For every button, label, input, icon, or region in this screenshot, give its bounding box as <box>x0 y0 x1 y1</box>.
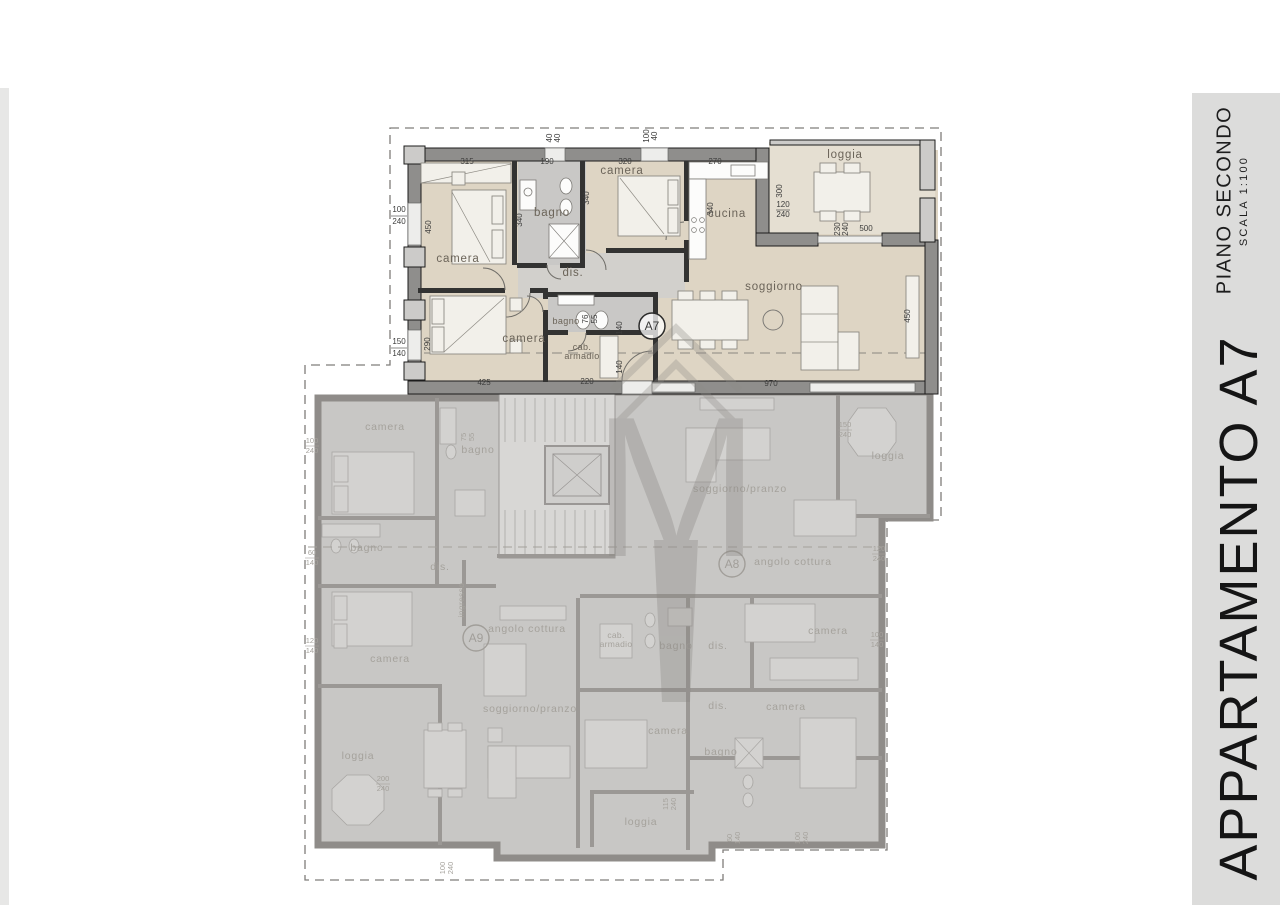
dim: 40 <box>553 133 562 142</box>
dim: 300 <box>775 184 784 198</box>
dim: 315 <box>460 157 474 166</box>
dim: 120 <box>776 200 790 209</box>
pillar <box>920 198 935 242</box>
pillar <box>404 362 425 380</box>
dim: 240 <box>873 554 886 563</box>
pillow <box>432 327 444 352</box>
room-label: soggiorno/pranzo <box>483 703 577 715</box>
room-label: dis. <box>708 700 728 712</box>
room-label-dis: dis. <box>562 267 583 279</box>
window <box>641 148 668 161</box>
dim: 150 <box>839 420 852 429</box>
dim: 40 <box>650 131 659 140</box>
dim: 60 <box>308 548 316 557</box>
a9-badge-label: A9 <box>469 631 484 645</box>
kitchen-counter <box>500 606 566 620</box>
dim: 120 <box>306 636 319 645</box>
window <box>810 383 915 392</box>
dim: 190 <box>540 157 554 166</box>
vanity <box>322 524 380 537</box>
room-label-bagno: bagno <box>534 207 570 219</box>
dim: 140 <box>733 832 742 845</box>
room-label: bagno <box>461 444 494 456</box>
loggia-table <box>814 172 870 212</box>
bed <box>745 604 815 642</box>
kitchen-table <box>794 500 856 536</box>
dim: 270 <box>708 157 722 166</box>
kitchen-table <box>484 644 526 696</box>
dim: 450 <box>424 220 433 234</box>
room-label-camera: camera <box>436 253 479 265</box>
pillar <box>920 140 935 190</box>
dim: 240 <box>801 832 810 845</box>
room-label: dis. <box>708 640 728 652</box>
room-label: loggia <box>872 450 905 462</box>
kitchen-counter <box>689 162 768 179</box>
room-label-camera: camera <box>502 333 545 345</box>
room-label: loggia <box>625 816 658 828</box>
floor-plan: camera bagno 75 55 bagno dis. camera ing… <box>0 0 1280 905</box>
vanity <box>558 295 594 305</box>
room-label-bagno: bagno <box>552 316 579 326</box>
room-label: armadio <box>600 639 633 649</box>
room-label: camera <box>370 653 410 665</box>
dim: 140 <box>306 558 319 567</box>
kitchen-sink <box>731 165 755 176</box>
vanity <box>520 180 536 210</box>
dim: 140 <box>615 360 624 374</box>
dim: 140 <box>615 321 624 335</box>
dim: 200 <box>377 774 390 783</box>
pillow <box>432 299 444 324</box>
sofa <box>801 286 838 370</box>
dim: 970 <box>764 379 778 388</box>
window <box>408 330 421 360</box>
dim: 240 <box>392 217 406 226</box>
nightstand <box>510 298 522 311</box>
room-label: angolo cottura <box>488 623 566 635</box>
room-label-loggia: loggia <box>827 149 863 161</box>
window <box>408 203 421 245</box>
loggia-table <box>848 408 896 456</box>
dim: 240 <box>669 798 678 811</box>
dim: 290 <box>423 337 432 351</box>
dim: 240 <box>446 862 455 875</box>
dim: 425 <box>477 378 491 387</box>
bed <box>800 718 856 788</box>
dim: 100 <box>871 630 884 639</box>
dim: 55 <box>467 433 476 441</box>
wc <box>446 445 456 459</box>
nightstand <box>452 172 465 185</box>
room-label: bagno <box>704 746 737 758</box>
dim: 240 <box>841 222 850 236</box>
dim: 76 <box>581 314 590 323</box>
dim: 340 <box>706 202 715 216</box>
pillar <box>404 146 425 164</box>
apartment-a7: camera bagno camera cucina loggia dis. c… <box>391 129 938 394</box>
dim: 100 <box>306 436 319 445</box>
pillar <box>404 300 425 320</box>
wardrobe <box>770 658 858 680</box>
room-label: camera <box>808 625 848 637</box>
dim: 240 <box>377 784 390 793</box>
dim: 320 <box>618 157 632 166</box>
pillow <box>668 208 678 233</box>
vanity <box>440 408 456 444</box>
room-label: bagno <box>350 542 383 554</box>
room-label: ingresso <box>456 583 466 618</box>
dim: 340 <box>515 213 524 227</box>
sofa <box>838 332 859 370</box>
dim: 240 <box>776 210 790 219</box>
dim: 120 <box>873 544 886 553</box>
pillow <box>668 180 678 205</box>
dim: 500 <box>859 224 873 233</box>
room-label: camera <box>766 701 806 713</box>
dim: 100 <box>392 205 406 214</box>
room-label: dis. <box>430 561 450 573</box>
room-label: camera <box>365 421 405 433</box>
room-label: angolo cottura <box>754 556 832 568</box>
room-label-armadio: armadio <box>564 351 599 361</box>
room-label-camera: camera <box>600 165 643 177</box>
dim: 340 <box>582 191 591 205</box>
dim: 140 <box>871 640 884 649</box>
wc <box>560 178 572 194</box>
dim: 140 <box>392 349 406 358</box>
window <box>818 236 882 243</box>
dim: 150 <box>392 337 406 346</box>
dim: 450 <box>903 309 912 323</box>
dim: 240 <box>306 446 319 455</box>
a7-badge-label: A7 <box>645 319 660 333</box>
pillow <box>492 230 503 258</box>
room-label-soggiorno: soggiorno <box>745 281 803 293</box>
pillow <box>492 196 503 224</box>
dim: 240 <box>839 430 852 439</box>
dim: 140 <box>306 646 319 655</box>
dim: 55 <box>590 314 599 323</box>
bed <box>585 720 647 768</box>
pillar <box>404 247 425 267</box>
shower <box>455 490 485 516</box>
dining-table <box>424 730 466 788</box>
room-label: loggia <box>342 750 375 762</box>
room-label: camera <box>648 725 688 737</box>
